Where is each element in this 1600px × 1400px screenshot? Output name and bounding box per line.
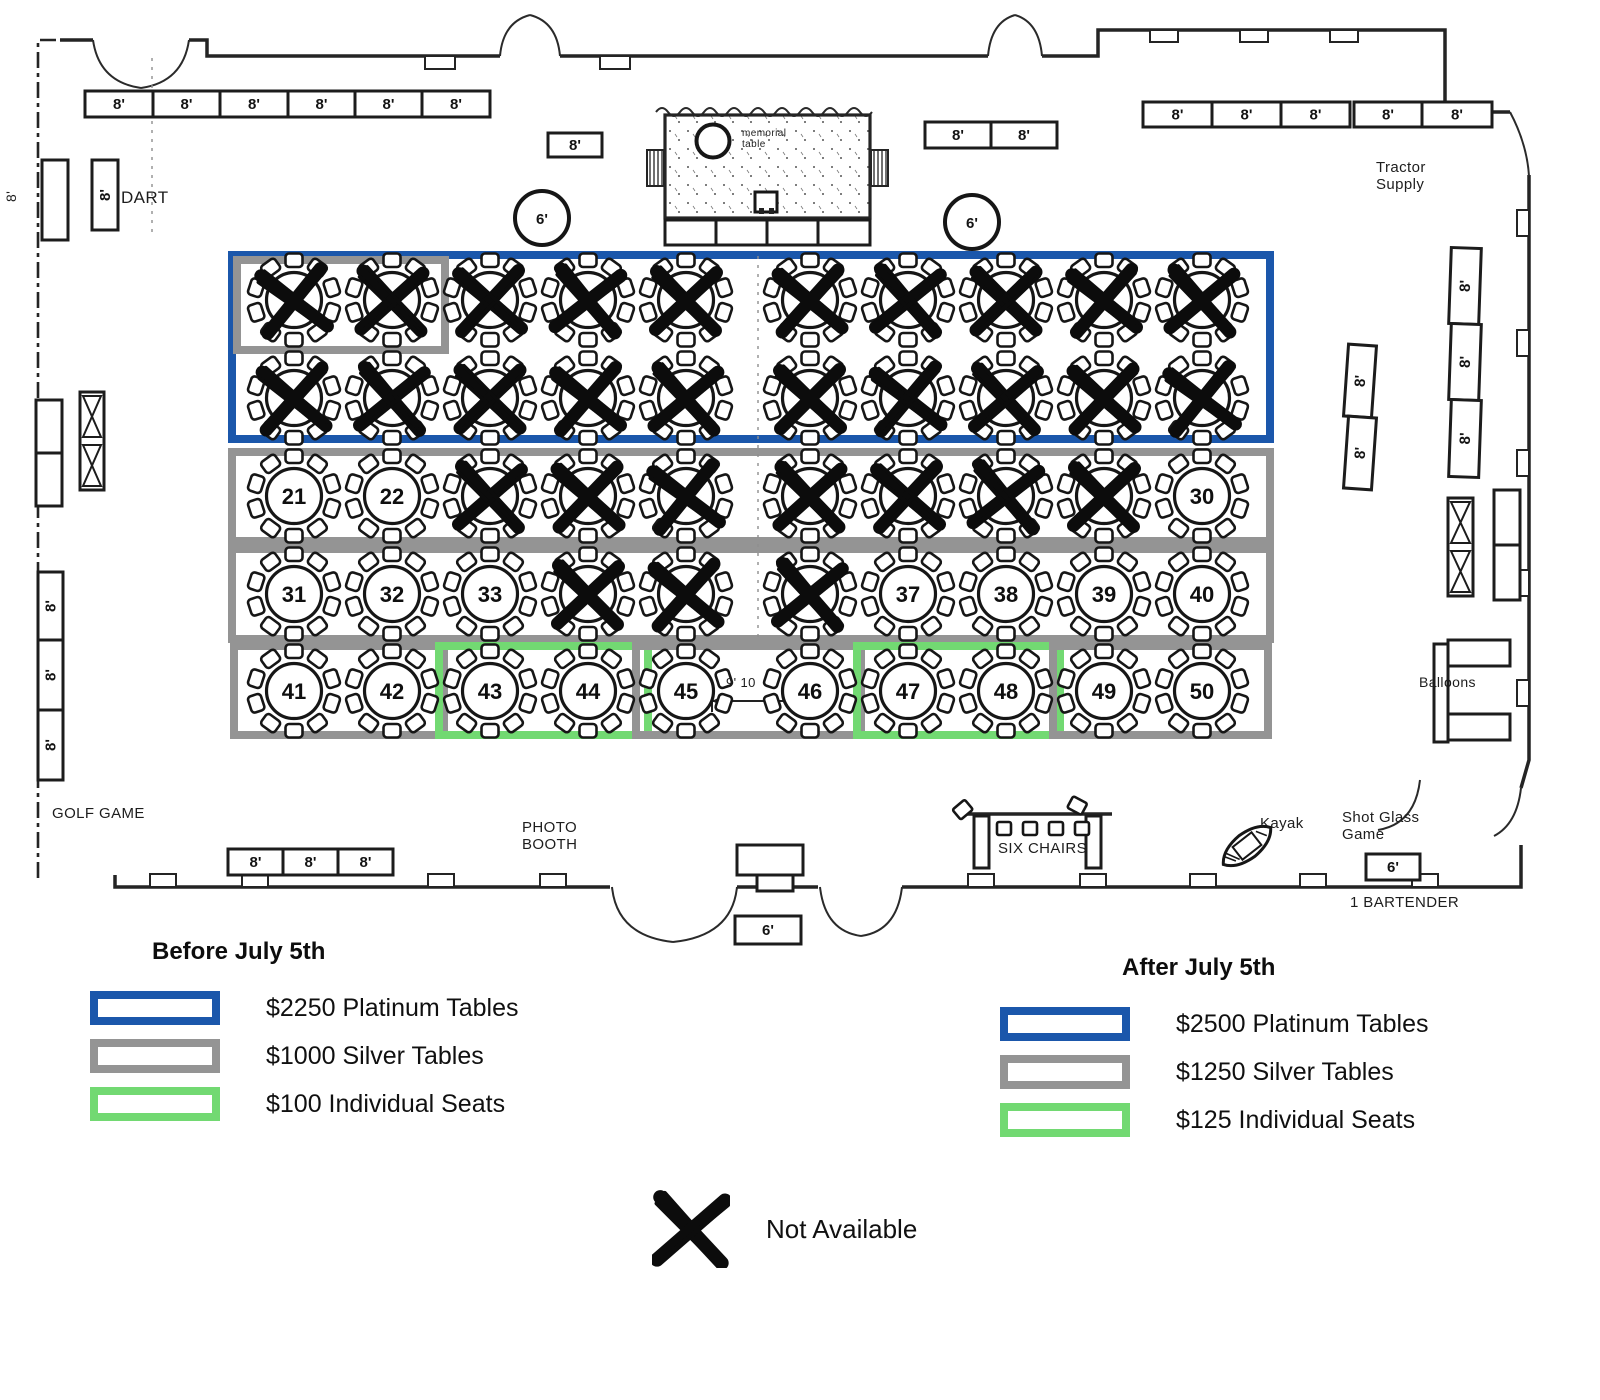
stage-step-left: [647, 150, 664, 186]
round-table-na-r1-c10[interactable]: [1155, 254, 1249, 347]
round-table-37[interactable]: 37: [861, 548, 955, 641]
svg-text:8': 8': [43, 669, 60, 681]
double-door-bottom-center: [612, 887, 737, 942]
banquet-table: [716, 220, 767, 245]
round-table-na-r2-c3[interactable]: [443, 352, 537, 445]
round-table-na-r2-c7[interactable]: [861, 352, 955, 445]
svg-text:30: 30: [1190, 484, 1214, 509]
round-table-45[interactable]: 45: [639, 645, 733, 738]
svg-text:8': 8': [1310, 107, 1322, 124]
svg-text:8': 8': [250, 854, 262, 871]
banquet-table-8ft: 8': [153, 91, 220, 117]
guest-tables: 2122303132333738394041424344454647484950: [247, 254, 1249, 738]
svg-text:8': 8': [383, 96, 395, 113]
stage-step-right: [871, 150, 888, 186]
legend-after-july-5: After July 5th $2500 Platinum Tables$125…: [1000, 954, 1429, 1144]
banquet-table-6ft: 6': [735, 916, 801, 944]
round-table-na-r1-c3[interactable]: [443, 254, 537, 347]
legend-before-swatch-seat_green: [90, 1087, 220, 1121]
double-door-top-center-right: [988, 15, 1042, 56]
round-table-47[interactable]: 47: [861, 645, 955, 738]
legend-after-label-3: $125 Individual Seats: [1176, 1106, 1415, 1135]
svg-text:47: 47: [896, 679, 920, 704]
round-table-42[interactable]: 42: [345, 645, 439, 738]
round-table-38[interactable]: 38: [959, 548, 1053, 641]
svg-text:43: 43: [478, 679, 502, 704]
banquet-table-8ft: 8': [925, 122, 991, 148]
svg-text:8': 8': [43, 600, 60, 612]
banquet-table-8ft: 8': [1422, 102, 1492, 127]
svg-text:39: 39: [1092, 582, 1116, 607]
legend-after-row-1: $2500 Platinum Tables: [1000, 1000, 1429, 1048]
round-table-na-r3-c4[interactable]: [541, 450, 635, 543]
banquet-table-6ft: 6': [1366, 854, 1420, 880]
svg-text:48: 48: [994, 679, 1018, 704]
round-table-na-r1-c5[interactable]: [639, 254, 733, 347]
svg-text:8': 8': [952, 127, 964, 144]
round-table-na-r3-c6[interactable]: [763, 450, 857, 543]
round-table-39[interactable]: 39: [1057, 548, 1151, 641]
svg-text:8': 8': [1352, 446, 1370, 459]
banquet-table: [767, 220, 818, 245]
legend-before-title: Before July 5th: [152, 938, 519, 966]
svg-text:32: 32: [380, 582, 404, 607]
svg-text:44: 44: [576, 679, 601, 704]
banquet-table: [1494, 545, 1520, 600]
legend-after-title: After July 5th: [1122, 954, 1429, 982]
kayak-icon: [1215, 817, 1278, 874]
round-table-21[interactable]: 21: [247, 450, 341, 543]
round-table-na-r4-c4[interactable]: [541, 548, 635, 641]
door-bottom-right: [1378, 780, 1420, 830]
round-table-6ft: 6': [515, 191, 569, 245]
svg-text:37: 37: [896, 582, 920, 607]
svg-text:31: 31: [282, 582, 306, 607]
round-table-na-r3-c9[interactable]: [1057, 450, 1151, 543]
banquet-table-8ft: 8': [92, 160, 118, 230]
svg-text:41: 41: [282, 679, 306, 704]
legend-before-row-1: $2250 Platinum Tables: [90, 984, 519, 1032]
round-table-na-r2-c5[interactable]: [639, 352, 733, 445]
svg-text:6': 6': [1387, 859, 1399, 876]
banquet-table-8ft: 8': [355, 91, 422, 117]
legend-after-label-1: $2500 Platinum Tables: [1176, 1010, 1429, 1039]
banquet-table: [36, 453, 62, 506]
svg-text:8': 8': [1382, 107, 1394, 124]
legend-before-row-2: $1000 Silver Tables: [90, 1032, 519, 1080]
legend-before-swatch-silver_gray: [90, 1039, 220, 1073]
banquet-table-8ft: 8': [228, 849, 283, 875]
banquet-table-8ft: 8': [1449, 247, 1482, 324]
svg-text:8': 8': [569, 137, 581, 154]
svg-text:8': 8': [316, 96, 328, 113]
svg-text:38: 38: [994, 582, 1018, 607]
svg-text:22: 22: [380, 484, 404, 509]
banquet-table-8ft: 8': [1344, 344, 1377, 418]
round-table-43[interactable]: 43: [443, 645, 537, 738]
banquet-table: [42, 160, 68, 240]
banquet-table-8ft: 8': [38, 710, 63, 780]
stage-chair-icon: [755, 192, 777, 214]
round-table-na-r2-c2[interactable]: [345, 352, 439, 445]
banquet-table-8ft: 8': [1449, 399, 1482, 477]
door-top-right: [1510, 112, 1529, 176]
round-table-33[interactable]: 33: [443, 548, 537, 641]
round-table-na-r1-c8[interactable]: [959, 254, 1053, 347]
svg-text:21: 21: [282, 484, 306, 509]
banquet-table: [1448, 640, 1510, 666]
banquet-table-8ft: 8': [548, 133, 602, 157]
round-table-48[interactable]: 48: [959, 645, 1053, 738]
round-table-na-r1-c7[interactable]: [861, 254, 955, 347]
banquet-table-8ft: 8': [1449, 323, 1482, 400]
round-table-49[interactable]: 49: [1057, 645, 1151, 738]
svg-text:40: 40: [1190, 582, 1214, 607]
banquet-table-8ft: 8': [991, 122, 1057, 148]
svg-text:8': 8': [1018, 127, 1030, 144]
round-table-na-r2-c6[interactable]: [763, 352, 857, 445]
round-table-na-r2-c4[interactable]: [541, 352, 635, 445]
round-table-50[interactable]: 50: [1155, 645, 1249, 738]
banquet-table-8ft: 8': [38, 640, 63, 710]
svg-text:49: 49: [1092, 679, 1116, 704]
svg-text:8': 8': [1352, 374, 1370, 387]
svg-text:8': 8': [43, 739, 60, 751]
svg-text:8': 8': [248, 96, 260, 113]
not-available-label: Not Available: [766, 1214, 917, 1245]
banquet-table-8ft: 8': [283, 849, 338, 875]
round-table-6ft: 6': [945, 195, 999, 249]
legend-before-july-5: Before July 5th $2250 Platinum Tables$10…: [90, 938, 519, 1128]
six-chairs-station: [952, 796, 1112, 868]
round-table-na-r3-c5[interactable]: [639, 450, 733, 543]
legend-after-label-2: $1250 Silver Tables: [1176, 1058, 1394, 1087]
legend-before-label-1: $2250 Platinum Tables: [266, 994, 519, 1023]
svg-text:42: 42: [380, 679, 404, 704]
round-table-na-r1-c4[interactable]: [541, 254, 635, 347]
legend-before-label-2: $1000 Silver Tables: [266, 1042, 484, 1071]
banquet-table-8ft: 8': [1354, 102, 1422, 127]
svg-text:8': 8': [97, 189, 114, 201]
svg-text:6': 6': [762, 922, 774, 939]
legend-after-swatch-seat_green: [1000, 1103, 1130, 1137]
svg-text:6': 6': [536, 211, 548, 228]
banquet-table: [1494, 490, 1520, 545]
legend-after-swatch-silver_gray: [1000, 1055, 1130, 1089]
banquet-table-8ft: 8': [422, 91, 490, 117]
double-door-top-center-left: [500, 15, 560, 56]
banquet-table: [1434, 644, 1448, 742]
round-table-22[interactable]: 22: [345, 450, 439, 543]
legend-after-row-2: $1250 Silver Tables: [1000, 1048, 1429, 1096]
legend-before-swatch-platinum_blue: [90, 991, 220, 1025]
double-door-top-left: [93, 40, 189, 88]
banquet-table: [818, 220, 870, 245]
legend-after-row-3: $125 Individual Seats: [1000, 1096, 1429, 1144]
banquet-table: [737, 845, 803, 875]
svg-text:50: 50: [1190, 679, 1214, 704]
svg-text:8': 8': [360, 854, 372, 871]
round-table-40[interactable]: 40: [1155, 548, 1249, 641]
banquet-table-8ft: 8': [220, 91, 288, 117]
banquet-table-8ft: 8': [1281, 102, 1350, 127]
door-right-wall: [1494, 788, 1521, 836]
legend-after-swatch-platinum_blue: [1000, 1007, 1130, 1041]
round-table-46[interactable]: 46: [763, 645, 857, 738]
round-table-44[interactable]: 44: [541, 645, 635, 738]
svg-text:8': 8': [113, 96, 125, 113]
serpentine-table: [80, 392, 104, 490]
round-table-30[interactable]: 30: [1155, 450, 1249, 543]
svg-text:6': 6': [966, 215, 978, 232]
svg-text:8': 8': [1457, 432, 1474, 445]
round-table-na-r1-c9[interactable]: [1057, 254, 1151, 347]
round-table-na-r2-c1[interactable]: [247, 352, 341, 445]
not-available-x-icon: [652, 1190, 730, 1268]
banquet-table: [36, 400, 62, 453]
round-table-32[interactable]: 32: [345, 548, 439, 641]
banquet-table: [665, 220, 716, 245]
banquet-table-8ft: 8': [38, 572, 63, 640]
round-table-41[interactable]: 41: [247, 645, 341, 738]
round-table-na-r1-c6[interactable]: [763, 254, 857, 347]
svg-text:8': 8': [1457, 356, 1474, 369]
round-table-na-r3-c7[interactable]: [861, 450, 955, 543]
svg-text:33: 33: [478, 582, 502, 607]
svg-text:45: 45: [674, 679, 698, 704]
banquet-table-8ft: 8': [338, 849, 393, 875]
round-table-na-r2-c8[interactable]: [959, 352, 1053, 445]
banquet-table-8ft: 8': [1143, 102, 1212, 127]
round-table-na-r2-c10[interactable]: [1155, 352, 1249, 445]
round-table-na-r2-c9[interactable]: [1057, 352, 1151, 445]
banquet-table: [757, 875, 793, 891]
memorial-round-table-icon: [697, 125, 730, 158]
not-available-key: Not Available: [652, 1190, 917, 1268]
svg-text:8': 8': [1241, 107, 1253, 124]
svg-text:8': 8': [1451, 107, 1463, 124]
double-door-bottom-right-of-center: [820, 887, 902, 936]
round-table-na-r4-c6[interactable]: [763, 548, 857, 641]
round-table-na-r4-c5[interactable]: [639, 548, 733, 641]
memorial-stage: [647, 108, 888, 218]
legend-before-label-3: $100 Individual Seats: [266, 1090, 505, 1119]
svg-text:8': 8': [1457, 280, 1474, 293]
banquet-table-8ft: 8': [1212, 102, 1281, 127]
banquet-table-8ft: 8': [85, 91, 153, 117]
banquet-table-8ft: 8': [1344, 416, 1377, 490]
banquet-table-8ft: 8': [288, 91, 355, 117]
svg-text:8': 8': [305, 854, 317, 871]
round-table-na-r3-c3[interactable]: [443, 450, 537, 543]
svg-text:8': 8': [1172, 107, 1184, 124]
round-table-31[interactable]: 31: [247, 548, 341, 641]
round-table-na-r1-c2[interactable]: [345, 254, 439, 347]
round-table-na-r1-c1[interactable]: [247, 254, 341, 347]
svg-text:46: 46: [798, 679, 822, 704]
banquet-table: [1448, 714, 1510, 740]
svg-text:8': 8': [181, 96, 193, 113]
serpentine-table: [1448, 498, 1473, 596]
legend-before-row-3: $100 Individual Seats: [90, 1080, 519, 1128]
round-table-na-r3-c8[interactable]: [959, 450, 1053, 543]
svg-text:8': 8': [450, 96, 462, 113]
